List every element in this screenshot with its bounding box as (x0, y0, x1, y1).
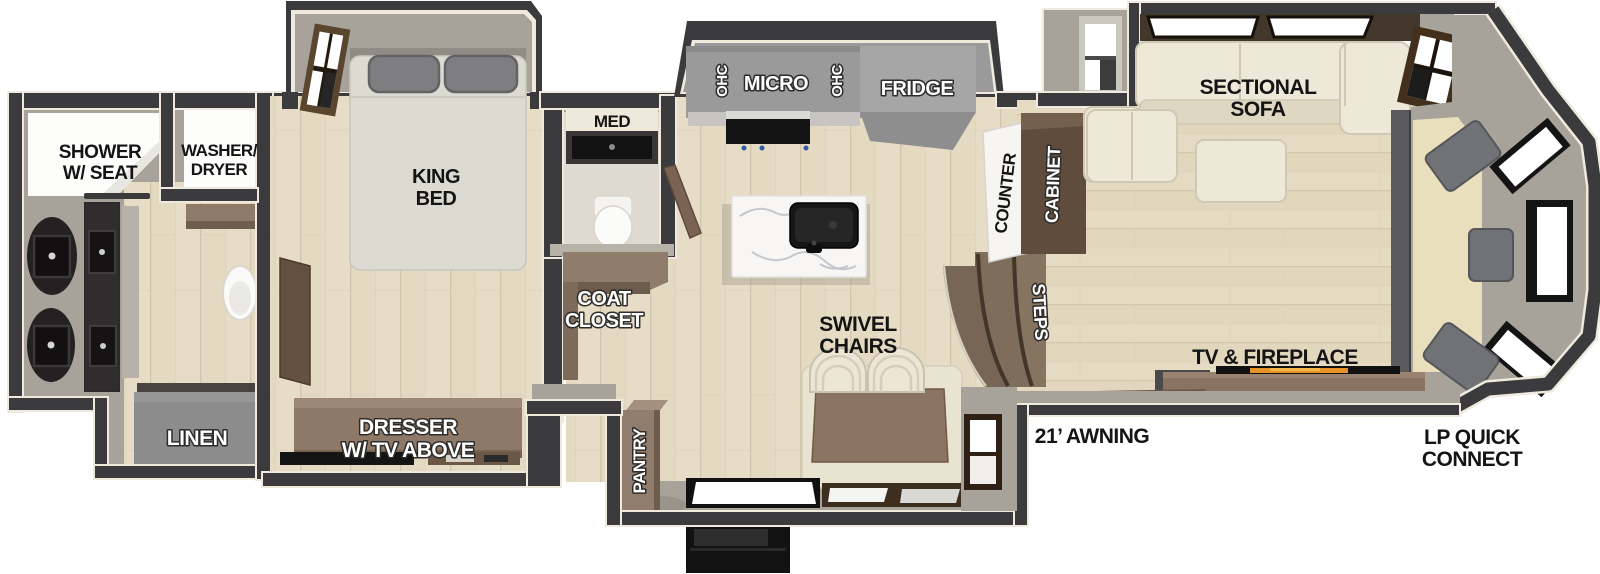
svg-text:TV & FIREPLACE: TV & FIREPLACE (1192, 346, 1358, 369)
svg-text:CLOSET: CLOSET (565, 310, 643, 332)
svg-text:OHC: OHC (829, 64, 846, 97)
svg-text:CHAIRS: CHAIRS (819, 335, 897, 358)
svg-text:LP QUICK: LP QUICK (1424, 426, 1520, 449)
svg-text:FRIDGE: FRIDGE (881, 78, 954, 100)
svg-text:W/ TV ABOVE: W/ TV ABOVE (342, 439, 475, 462)
svg-text:CABINET: CABINET (1042, 146, 1065, 224)
svg-text:MICRO: MICRO (744, 73, 808, 95)
svg-text:SHOWER: SHOWER (59, 142, 142, 163)
svg-text:SWIVEL: SWIVEL (819, 313, 897, 336)
svg-text:W/ SEAT: W/ SEAT (63, 163, 138, 184)
svg-text:SECTIONAL: SECTIONAL (1200, 76, 1318, 99)
svg-text:PANTRY: PANTRY (630, 427, 649, 493)
svg-text:COAT: COAT (577, 288, 630, 310)
svg-text:STEPS: STEPS (1029, 283, 1052, 341)
svg-text:OHC: OHC (714, 64, 731, 97)
svg-text:BED: BED (416, 188, 457, 210)
svg-text:MED: MED (594, 112, 631, 131)
svg-text:LINEN: LINEN (167, 427, 228, 450)
svg-text:21’ AWNING: 21’ AWNING (1035, 425, 1150, 448)
svg-text:DRYER: DRYER (191, 160, 248, 179)
svg-text:SOFA: SOFA (1230, 98, 1286, 121)
svg-text:WASHER/: WASHER/ (181, 141, 258, 160)
svg-text:KING: KING (412, 166, 460, 188)
svg-text:CONNECT: CONNECT (1422, 448, 1523, 471)
svg-text:DRESSER: DRESSER (359, 416, 457, 439)
